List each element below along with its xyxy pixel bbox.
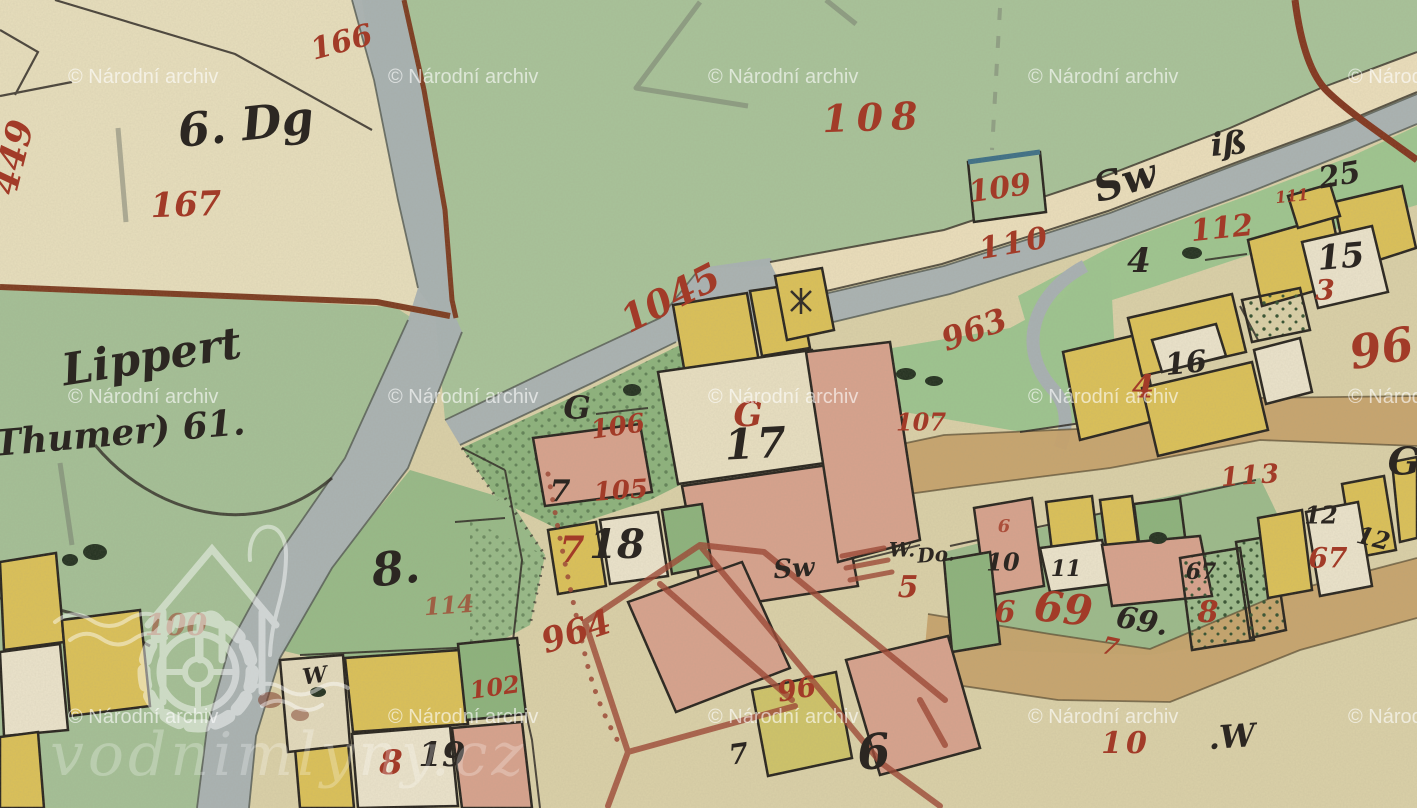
map-label: 167 [150,184,223,226]
map-label: 96 [775,669,819,708]
map-label: 6 [995,595,1016,630]
map-label: 113 [1220,459,1282,493]
archive-watermark: © Národní archiv [1028,386,1178,408]
archive-watermark: © Národní archiv [68,66,218,88]
archive-watermark: © Národní archiv [1028,706,1178,728]
archive-watermark: © Národní archiv [388,66,538,88]
map-label: Sw [772,552,817,585]
map-label: 108 [821,93,926,142]
map-label: 105 [593,474,649,508]
archive-watermark: © Národní archiv [68,386,218,408]
map-label: 7 [559,529,584,571]
map-label: G [563,389,590,427]
map-label: 6 [998,516,1011,537]
map-label: 96 [1345,316,1417,380]
archive-watermark: © Národní archiv [1348,386,1417,408]
archive-watermark: © Národní archiv [1348,706,1417,728]
map-label: 114 [423,589,475,621]
map-label: 6 [854,723,893,782]
archive-watermark: © Národní archiv [388,386,538,408]
archive-watermark: © Národní archiv [708,386,858,408]
map-label: 17 [723,417,790,469]
map-label: 112 [1189,208,1255,249]
map-viewport: 1661674491081091101045963961121114113106… [0,0,1417,808]
map-label: G [1388,439,1417,484]
map-label: Do. [915,541,955,568]
map-label: 25 [1315,155,1363,197]
map-label: .W [1207,716,1260,757]
map-label: 107 [896,408,946,437]
archive-watermark: © Národní archiv [708,706,858,728]
map-label: 8. [368,539,422,598]
map-label: 10 [1101,726,1151,761]
map-label: 10 [986,548,1020,577]
logo-text: vodnimlyny.cz [50,720,527,790]
map-label: 12 [1304,501,1337,530]
map-label: 67 [1186,559,1217,585]
map-label: 7 [550,474,571,509]
map-label: 15 [1316,235,1367,279]
map-label: 111 [1274,185,1309,207]
map-label: 11 [1051,556,1082,582]
map-label: 4 [1127,241,1151,281]
archive-watermark: © Národní archiv [708,66,858,88]
map-label: 69 [1032,581,1095,636]
map-label: 5 [898,570,919,605]
map-label: 16 [1163,344,1208,383]
cadastral-map: 1661674491081091101045963961121114113106… [0,0,1417,808]
map-label: iß [1209,123,1249,164]
map-label: 67 [1309,542,1348,575]
map-label: 8 [1197,595,1219,630]
archive-watermark: © Národní archiv [1348,66,1417,88]
map-label: W. [889,538,915,562]
archive-watermark: © Národní archiv [1028,66,1178,88]
map-label: 18 [589,521,645,568]
